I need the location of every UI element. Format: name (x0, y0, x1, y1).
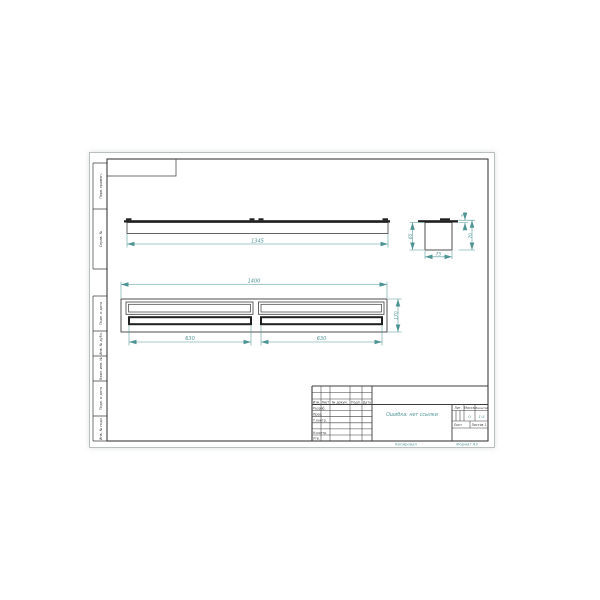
row-razrab: Разраб. (313, 406, 326, 410)
front-view: 1345 (124, 218, 390, 247)
plan-dim-slot-right-value: 630 (317, 336, 327, 342)
side-dim-flange-value: 5 (461, 214, 467, 217)
scale-label: Масштаб (475, 406, 489, 410)
drawing-sheet: Перв. примен. Справ. № Подп. и дата Инв.… (89, 152, 495, 448)
margin-label-perv-primen: Перв. примен. (99, 173, 103, 198)
plan-dim-slot-left-value: 630 (185, 336, 195, 342)
listov-value: 1 (485, 423, 487, 427)
page-background: Перв. примен. Справ. № Подп. и дата Инв.… (0, 0, 600, 600)
plan-bar-right (261, 317, 382, 324)
side-dim-overall-height-value: 70 (468, 233, 474, 239)
col-list: Лист (321, 400, 329, 404)
side-view-body (425, 222, 452, 250)
front-view-tab-left (126, 218, 132, 220)
col-izm: Изм. (313, 400, 321, 404)
plan-dim-overall-value: 1400 (248, 279, 261, 285)
margin-column-labels: Перв. примен. Справ. № Подп. и дата Инв.… (99, 173, 103, 440)
lit-label: Лит. (454, 406, 461, 410)
side-dim-body-height-value: 65 (408, 233, 414, 239)
row-utv: Утв. (313, 437, 320, 441)
row-prov: Пров. (313, 413, 322, 417)
side-dim-width-value: 75 (436, 251, 442, 257)
side-view-tab (440, 218, 450, 220)
plan-view: 1400 630 630 170 (121, 279, 402, 346)
title-block-labels: Изм. Лист № докум. Подп. Дата Разраб. Пр… (312, 400, 489, 440)
front-dim-value: 1345 (251, 238, 264, 244)
title-block: Изм. Лист № докум. Подп. Дата Разраб. Пр… (312, 386, 489, 441)
footer-format-label: Формат А3 (456, 442, 478, 447)
plan-dim-depth-value: 170 (394, 311, 400, 320)
plan-bar-left (129, 317, 251, 324)
col-doc: № докум. (332, 400, 348, 404)
row-tkontr: Т.контр. (312, 419, 327, 423)
top-left-stamp-box (107, 159, 176, 176)
scale-value: 1:5 (478, 414, 485, 419)
front-view-tab-mid-right (259, 218, 264, 220)
front-view-tab-right (383, 218, 389, 220)
margin-label-inv-podl: Инв. № подл. (99, 417, 103, 440)
footer-copied-label: Копировал (395, 442, 417, 447)
col-podp: Подп. (351, 400, 361, 404)
document-name: Ошибка: нет ссылки (386, 412, 438, 418)
margin-label-sprav-no: Справ. № (99, 230, 103, 247)
margin-label-podp-data-1: Подп. и дата (99, 302, 103, 325)
front-view-flange (124, 220, 390, 222)
margin-label-vzam-inv: Взам. инв. № (99, 357, 103, 380)
front-view-tab-mid-left (250, 218, 255, 220)
drawing-svg: Перв. примен. Справ. № Подп. и дата Инв.… (90, 153, 494, 447)
list-label: Лист (454, 423, 462, 427)
front-view-body (127, 223, 388, 234)
mass-label: Масса (464, 406, 474, 410)
margin-label-inv-dubl: Инв. № дубл. (99, 332, 103, 355)
mass-value: 0 (468, 414, 471, 419)
col-data: Дата (363, 400, 371, 404)
side-view: 65 75 5 70 (408, 212, 475, 259)
margin-label-podp-data-2: Подп. и дата (99, 387, 103, 410)
listov-label: Листов (472, 423, 484, 427)
row-nkontr: Н.контр. (313, 431, 327, 435)
